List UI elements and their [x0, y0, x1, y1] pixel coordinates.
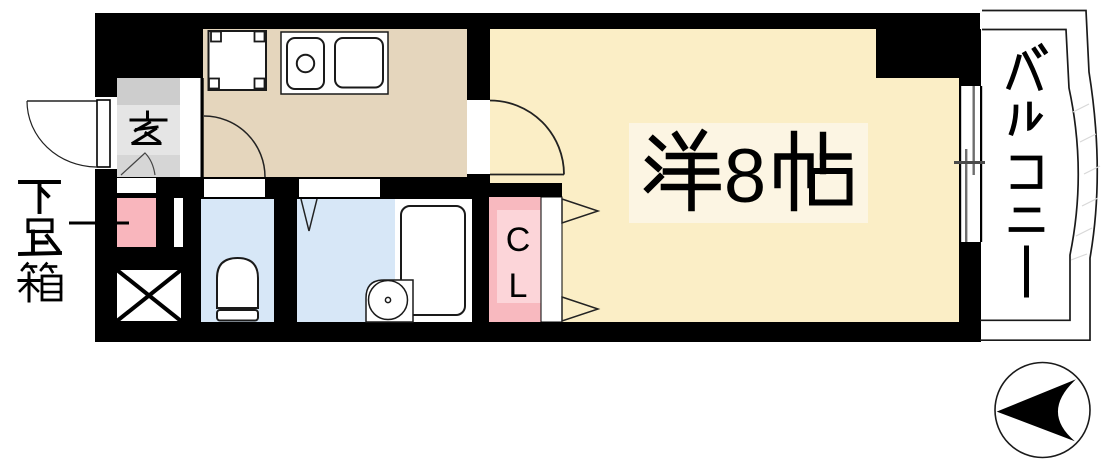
svg-text:L: L	[509, 267, 528, 305]
svg-text:8: 8	[724, 134, 766, 219]
svg-text:C: C	[506, 221, 531, 259]
